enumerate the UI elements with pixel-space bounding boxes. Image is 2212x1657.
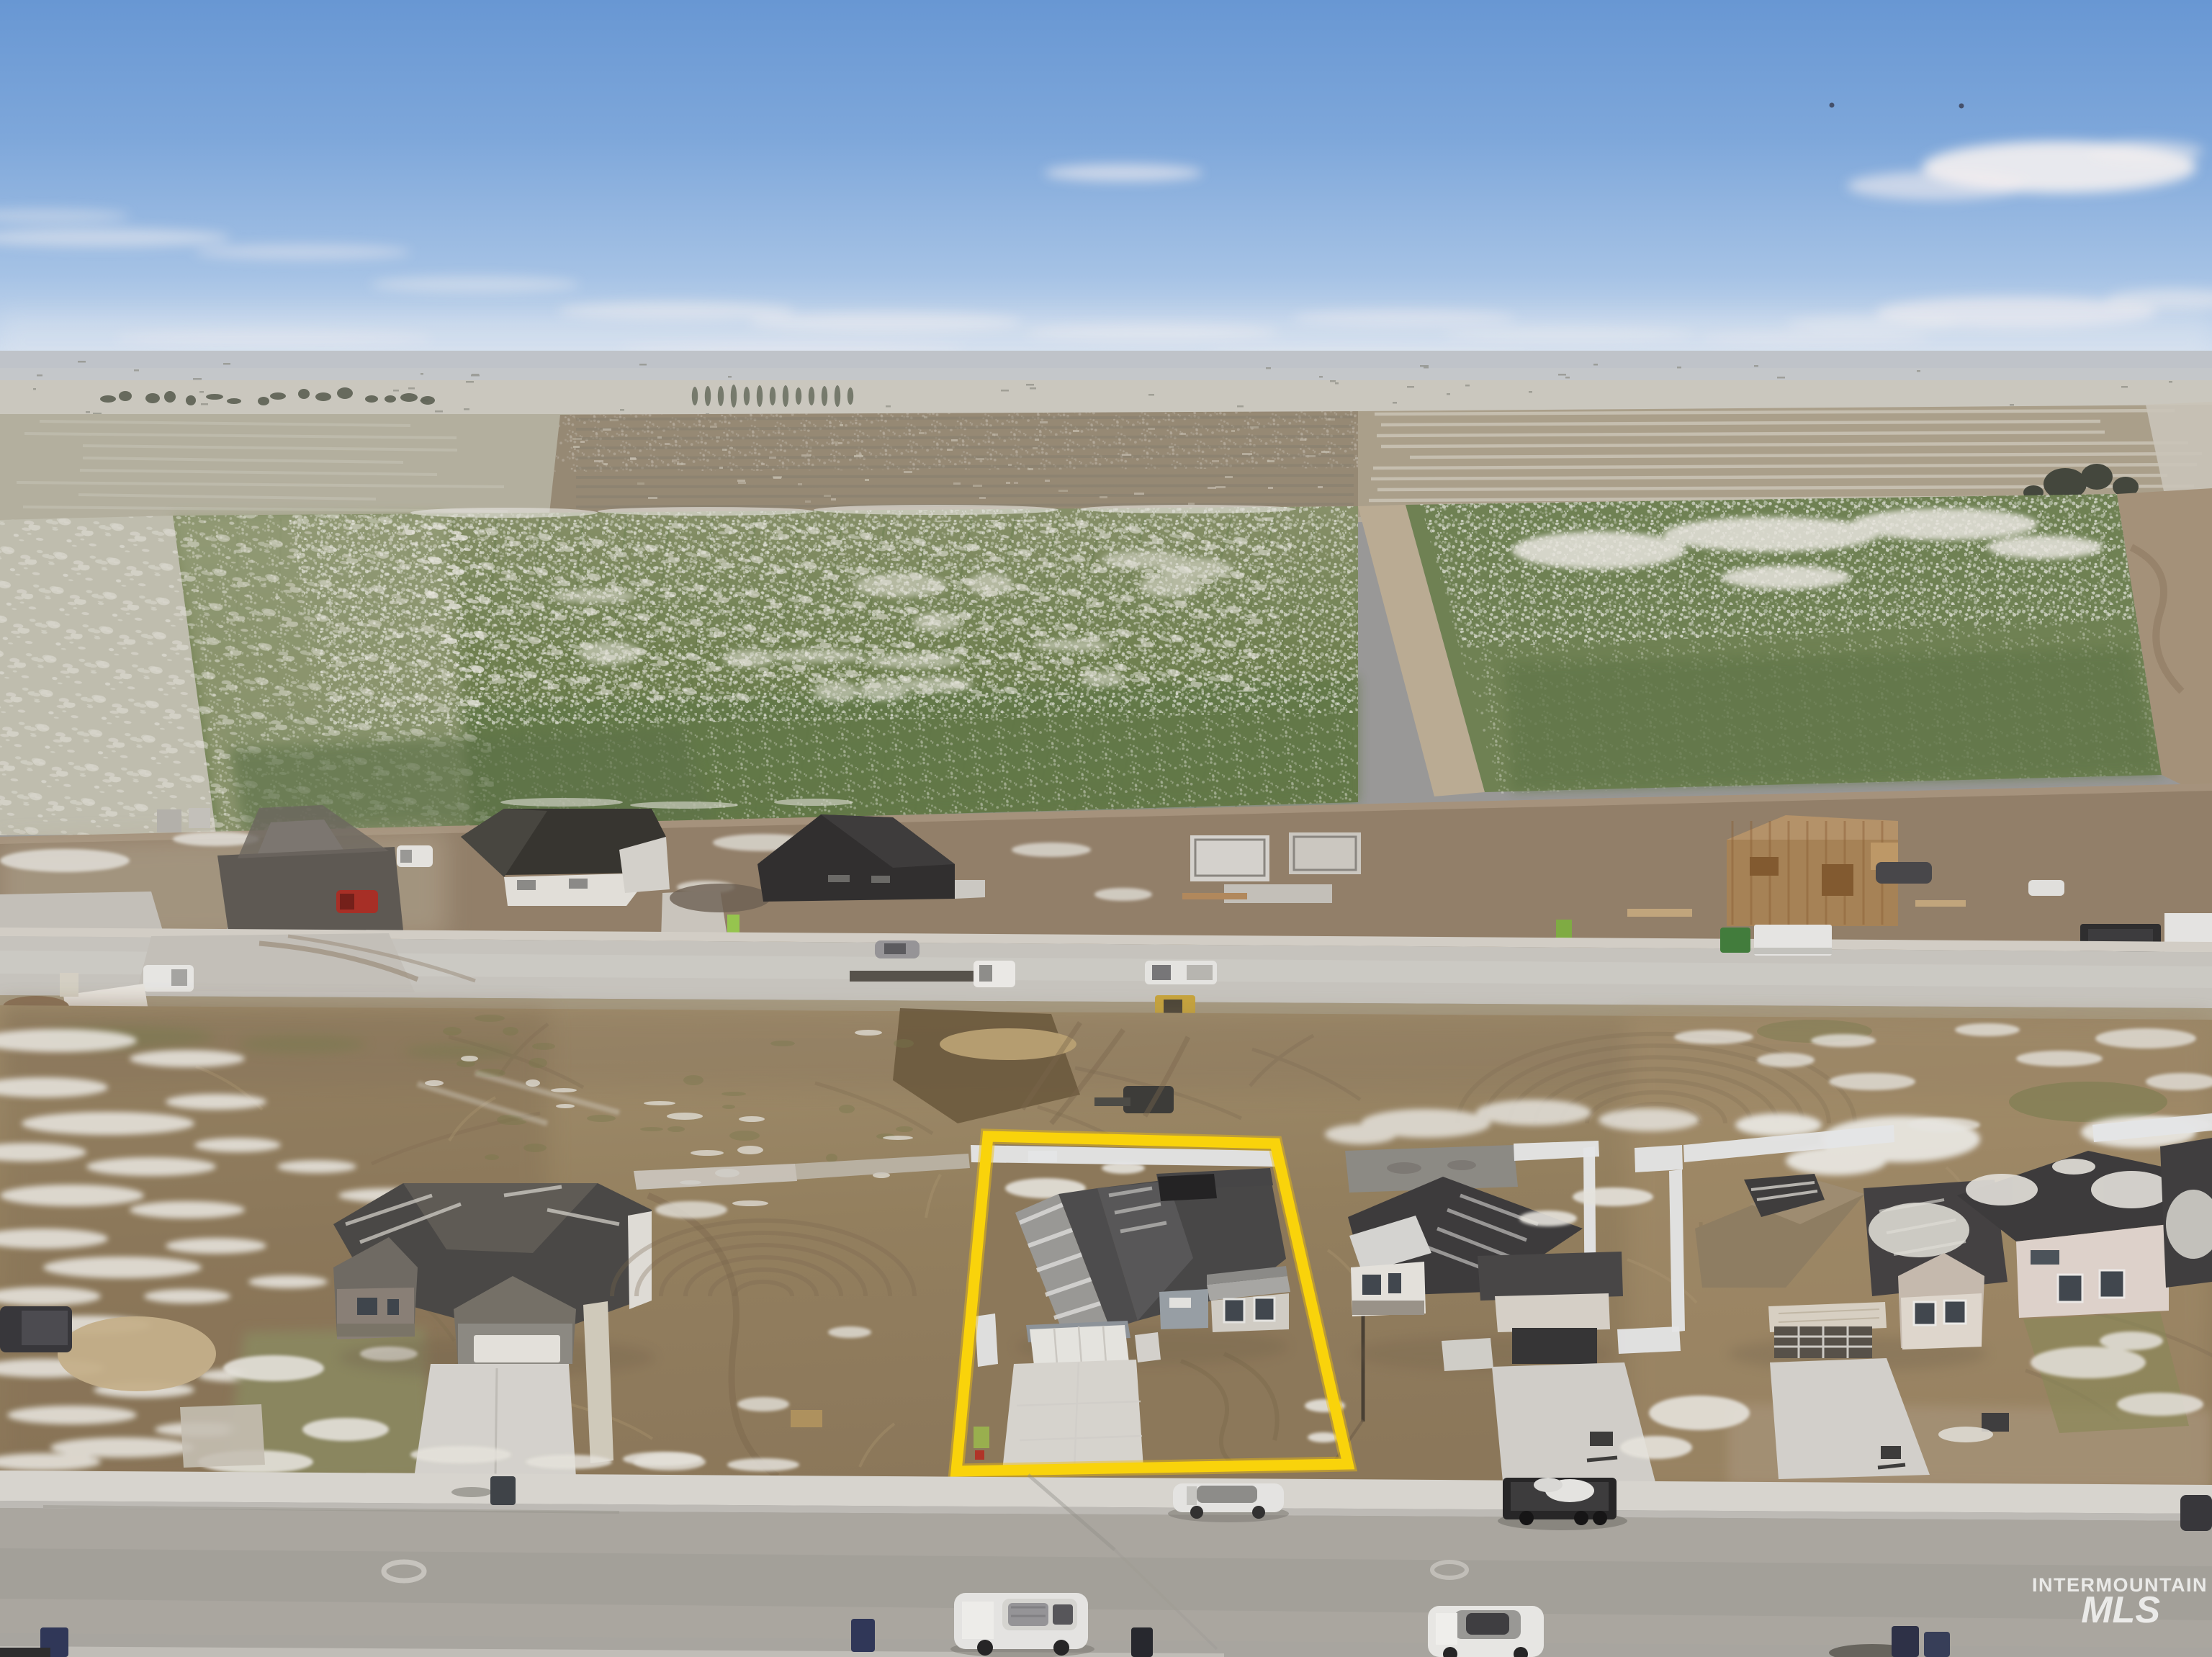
svg-text:MLS: MLS xyxy=(2081,1589,2160,1631)
